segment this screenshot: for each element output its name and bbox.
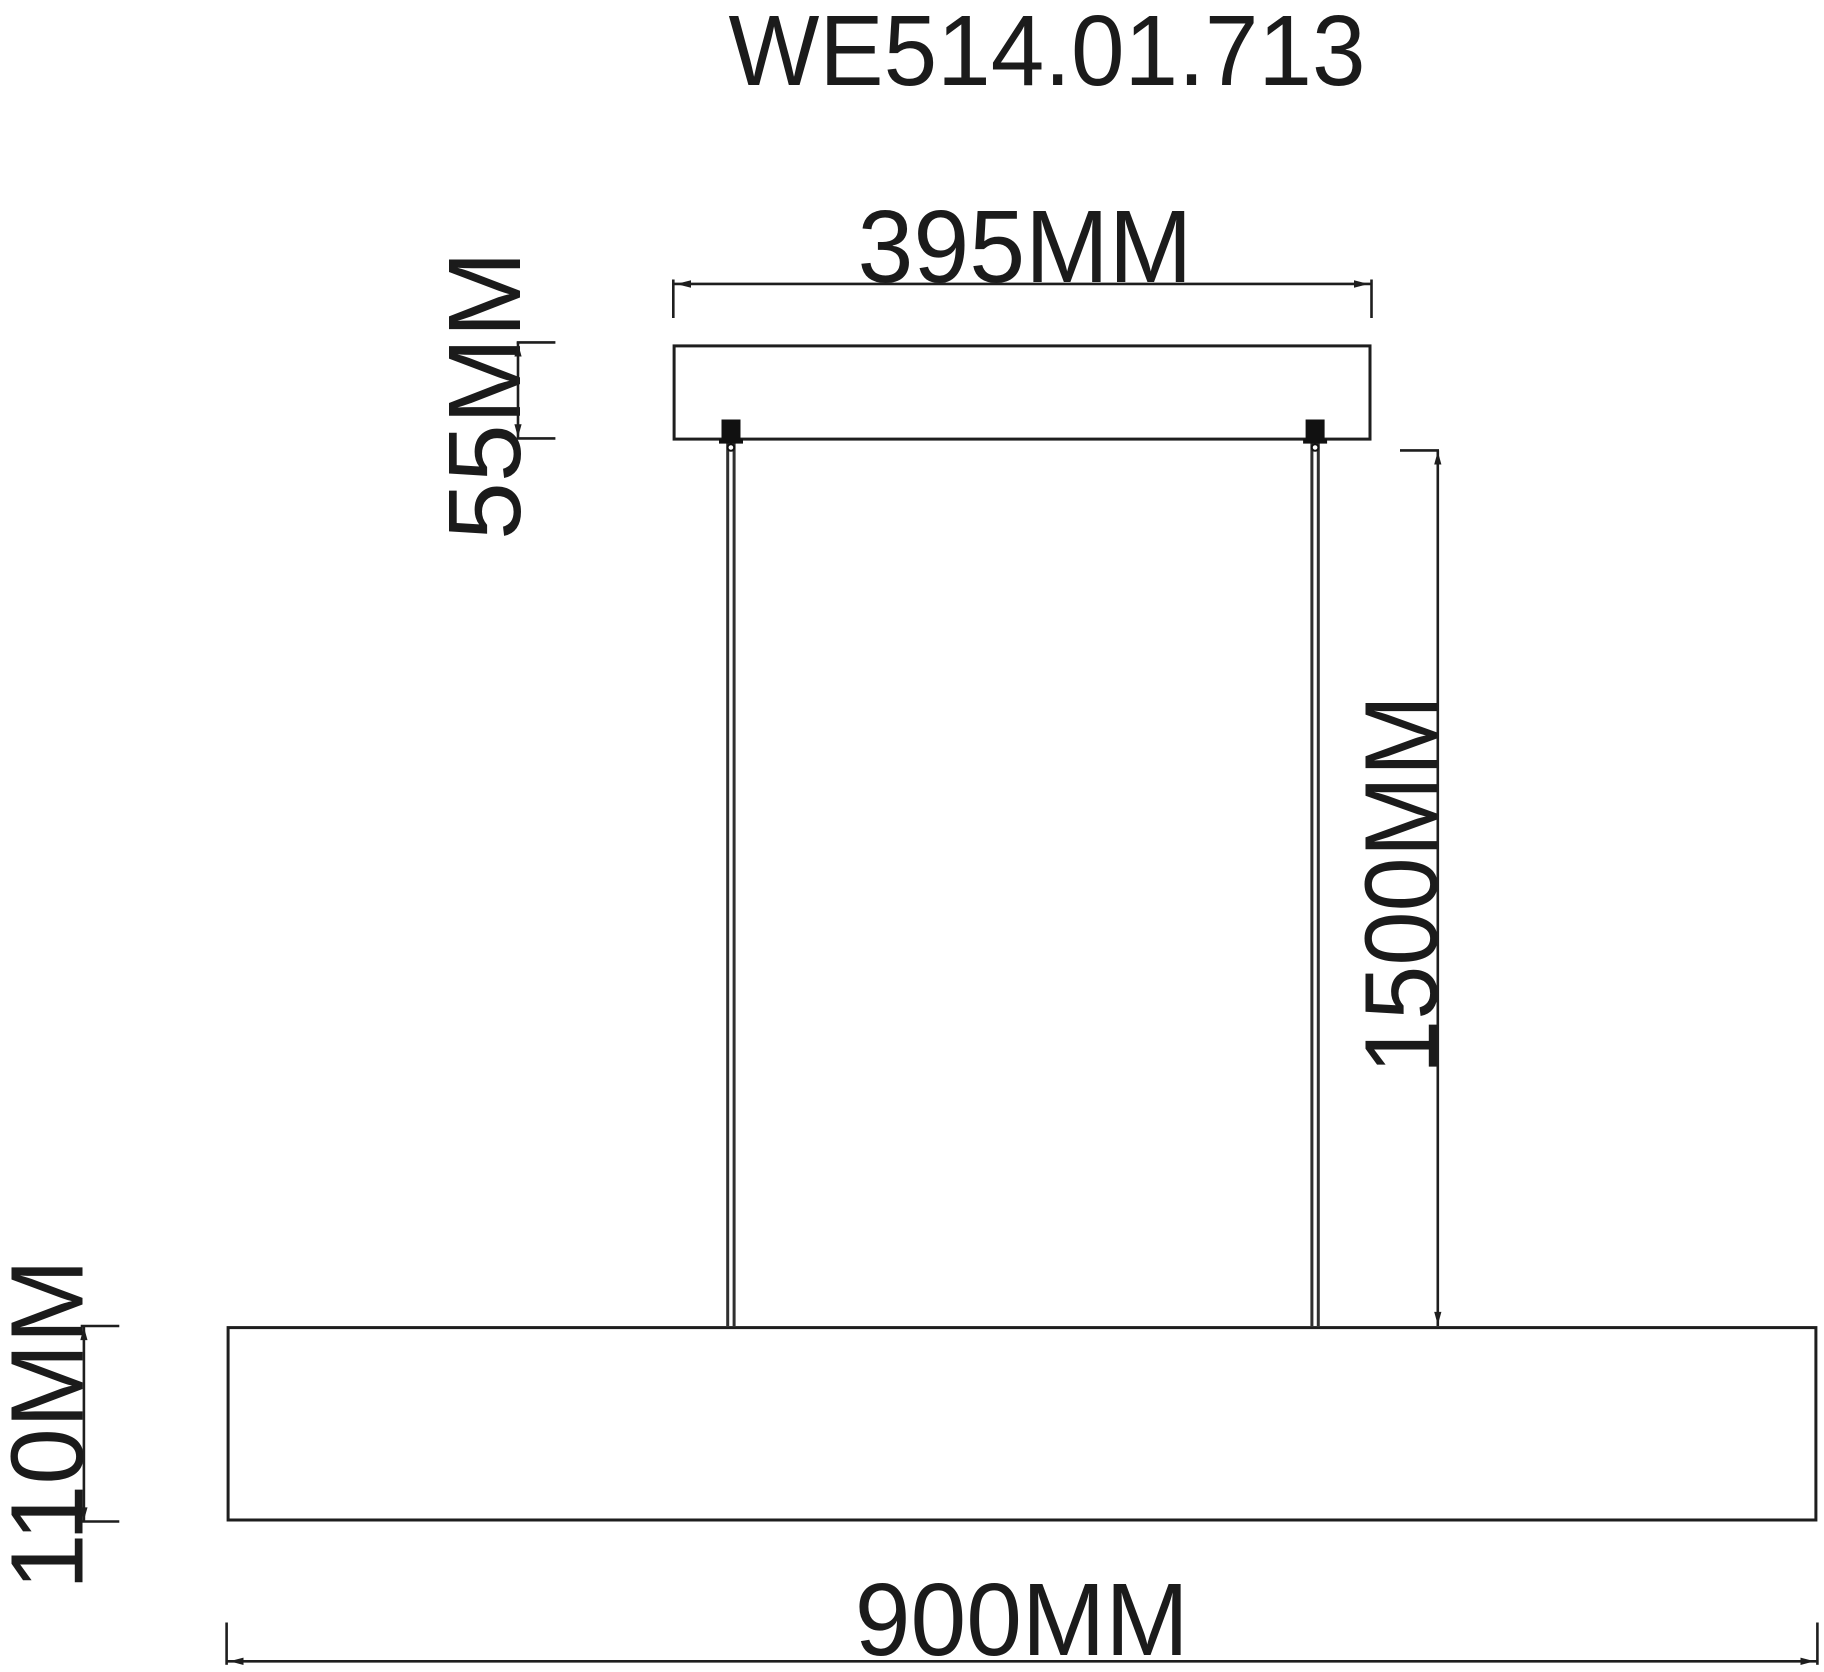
svg-text:110MM: 110MM <box>0 1259 105 1590</box>
svg-text:900MM: 900MM <box>855 1562 1189 1672</box>
svg-text:1500MM: 1500MM <box>1343 695 1458 1074</box>
svg-text:WE514.01.713: WE514.01.713 <box>729 0 1366 107</box>
svg-text:395MM: 395MM <box>858 189 1193 304</box>
svg-text:55MM: 55MM <box>427 251 542 540</box>
